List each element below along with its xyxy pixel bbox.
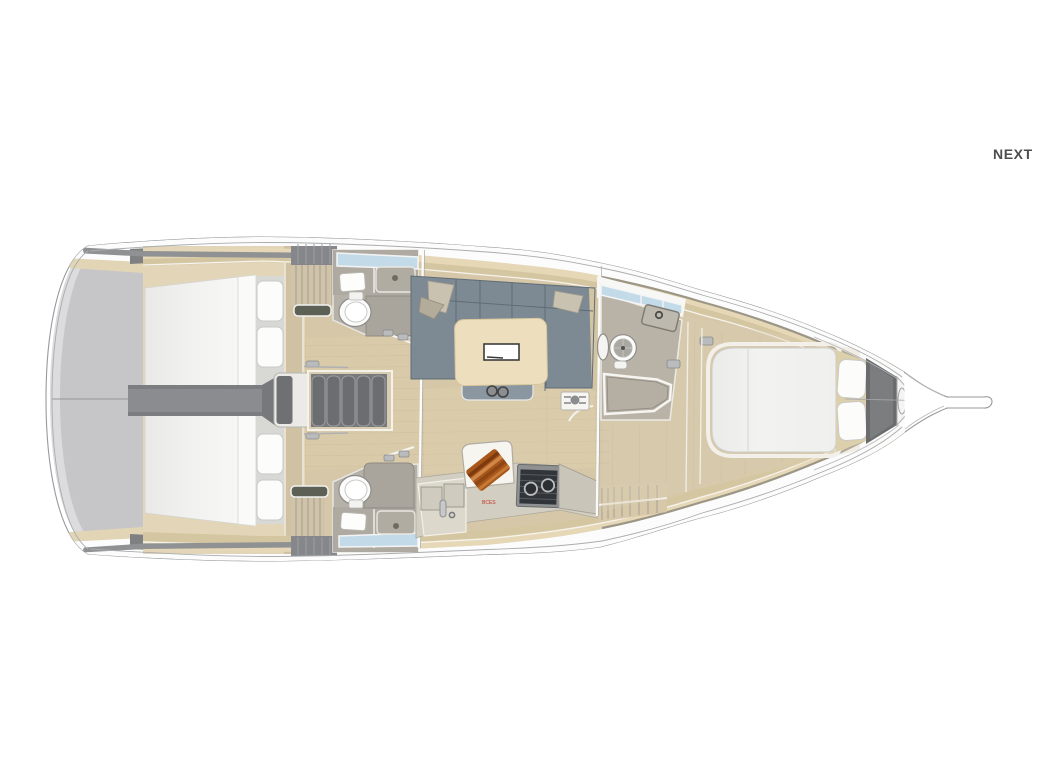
svg-text:BCES: BCES	[482, 500, 496, 506]
